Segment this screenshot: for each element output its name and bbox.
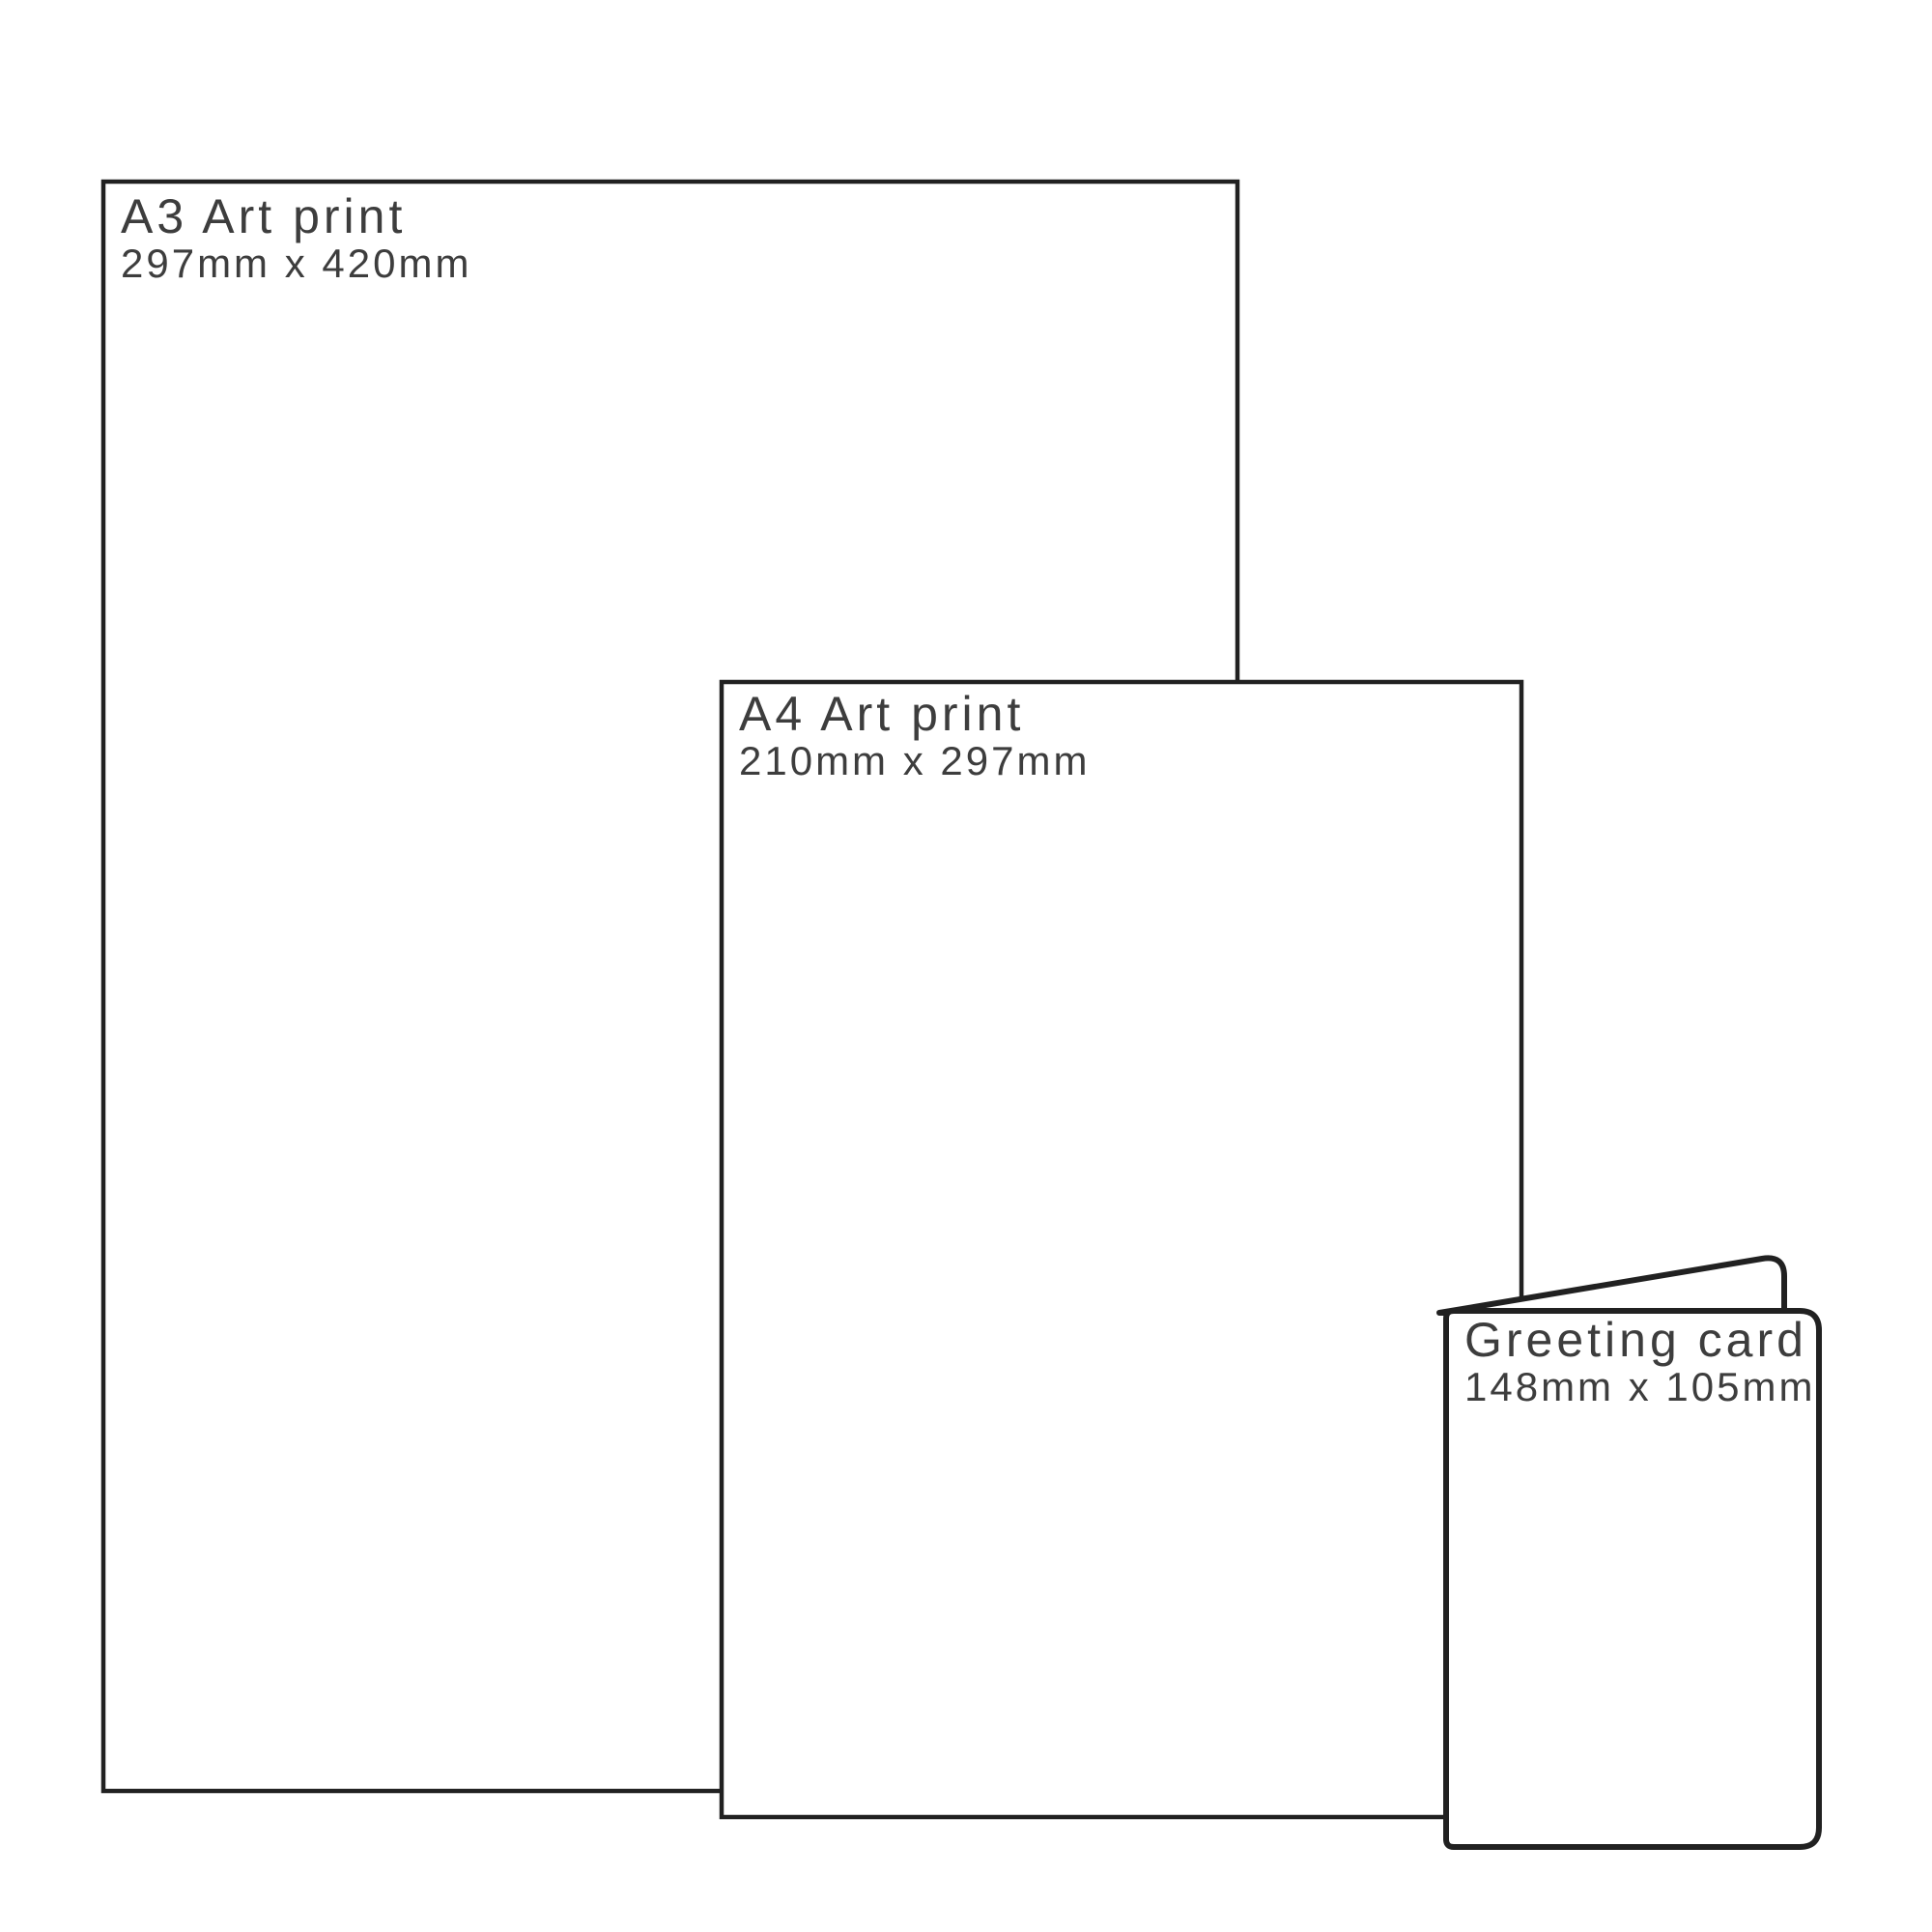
size-comparison-diagram: A3 Art print 297mm x 420mm A4 Art print …: [0, 0, 1932, 1932]
a4-print-label: A4 Art print 210mm x 297mm: [739, 689, 1090, 783]
a4-sheet-outline: [722, 682, 1521, 1817]
a3-print-title: A3 Art print: [121, 191, 471, 241]
paper-shapes-canvas: [0, 0, 1932, 1932]
greeting-card-title: Greeting card: [1464, 1315, 1815, 1365]
a3-print-label: A3 Art print 297mm x 420mm: [121, 191, 471, 286]
a4-print-dimensions: 210mm x 297mm: [739, 739, 1090, 783]
greeting-card-label: Greeting card 148mm x 105mm: [1464, 1315, 1815, 1409]
a3-print-dimensions: 297mm x 420mm: [121, 241, 471, 286]
greeting-card-dimensions: 148mm x 105mm: [1464, 1365, 1815, 1409]
a4-print-title: A4 Art print: [739, 689, 1090, 739]
